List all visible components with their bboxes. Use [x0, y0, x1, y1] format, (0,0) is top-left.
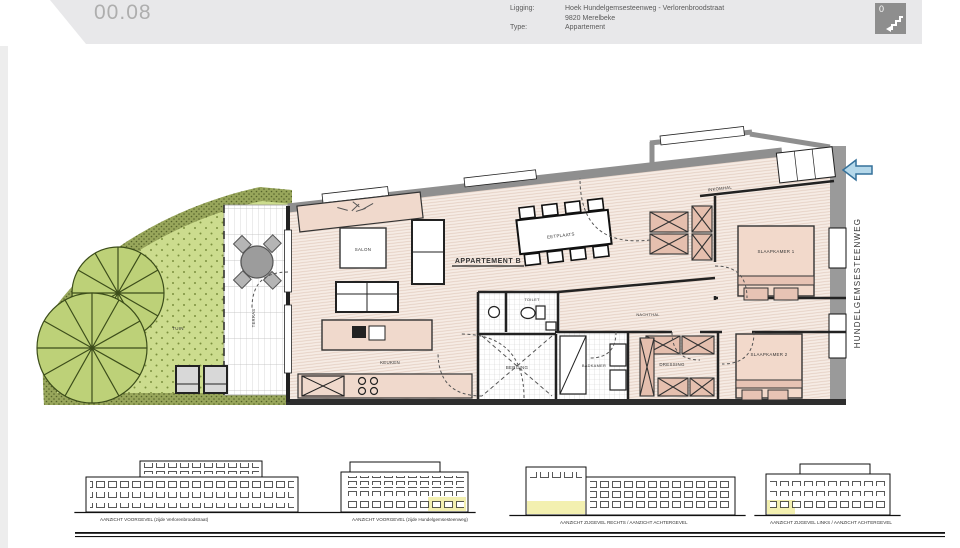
- room-label-slaapkamer1: SLAAPKAMER 1: [757, 249, 794, 254]
- floorplan-drawing: TUIN TERRAS SALON EETPLAATS KEUKEN TOILE…: [0, 0, 960, 548]
- kitchen-island: [322, 320, 432, 350]
- bed: [738, 226, 814, 300]
- room-label-salon: SALON: [355, 247, 371, 252]
- highlight-unit: [527, 501, 585, 514]
- room-label-nachthal: NACHTHAL: [636, 312, 660, 317]
- sheet-divider: [75, 532, 945, 537]
- elevations: AANZICHT VOORGEVEL (zijde Verlorenbroods…: [75, 461, 900, 525]
- room-label-dressing: DRESSING: [659, 362, 685, 367]
- room-label-tuin: TUIN: [172, 326, 184, 331]
- room-label-toilet: TOILET: [524, 297, 540, 302]
- entry-arrow-icon: [843, 160, 872, 180]
- plan-sheet: 00.08 Ligging:Hoek Hundelgemsesteenweg -…: [0, 0, 960, 548]
- room-label-keuken: KEUKEN: [380, 360, 400, 365]
- room-label-terras: TERRAS: [251, 309, 256, 328]
- page-edge: [0, 46, 8, 548]
- sofa: [336, 282, 398, 312]
- entrance-door: [776, 147, 835, 183]
- street-name-label: HUNDELGEMSESTEENWEG: [853, 218, 862, 348]
- room-label-badkamer: BADKAMER: [582, 363, 606, 368]
- elevation-caption: AANZICHT ZIJGEVEL LINKS / AANZICHT ACHTE…: [770, 520, 892, 525]
- elevation-zijgevel-links-achtergevel: [755, 464, 900, 516]
- elevation-voorgevel-hundelgemsesteenweg: [341, 462, 468, 512]
- tree-icon: [37, 293, 147, 403]
- bed: [736, 334, 802, 400]
- room-label-slaapkamer2: SLAAPKAMER 2: [750, 352, 787, 357]
- tv-unit: [412, 220, 444, 284]
- apartment-title: APPARTEMENT B: [452, 258, 524, 266]
- elevation-caption: AANZICHT VOORGEVEL (zijde Hundelgemseste…: [352, 517, 468, 522]
- apartment-title-text: APPARTEMENT B: [455, 258, 521, 265]
- elevation-caption: AANZICHT ZIJGEVEL RECHTS / AANZICHT ACHT…: [560, 520, 688, 525]
- elevation-zijgevel-rechts-achtergevel: [510, 467, 745, 516]
- room-label-berging: BERGING: [506, 365, 529, 370]
- kitchen-counter: [298, 374, 472, 398]
- elevation-caption: AANZICHT VOORGEVEL (zijde Verlorenbroods…: [100, 517, 209, 522]
